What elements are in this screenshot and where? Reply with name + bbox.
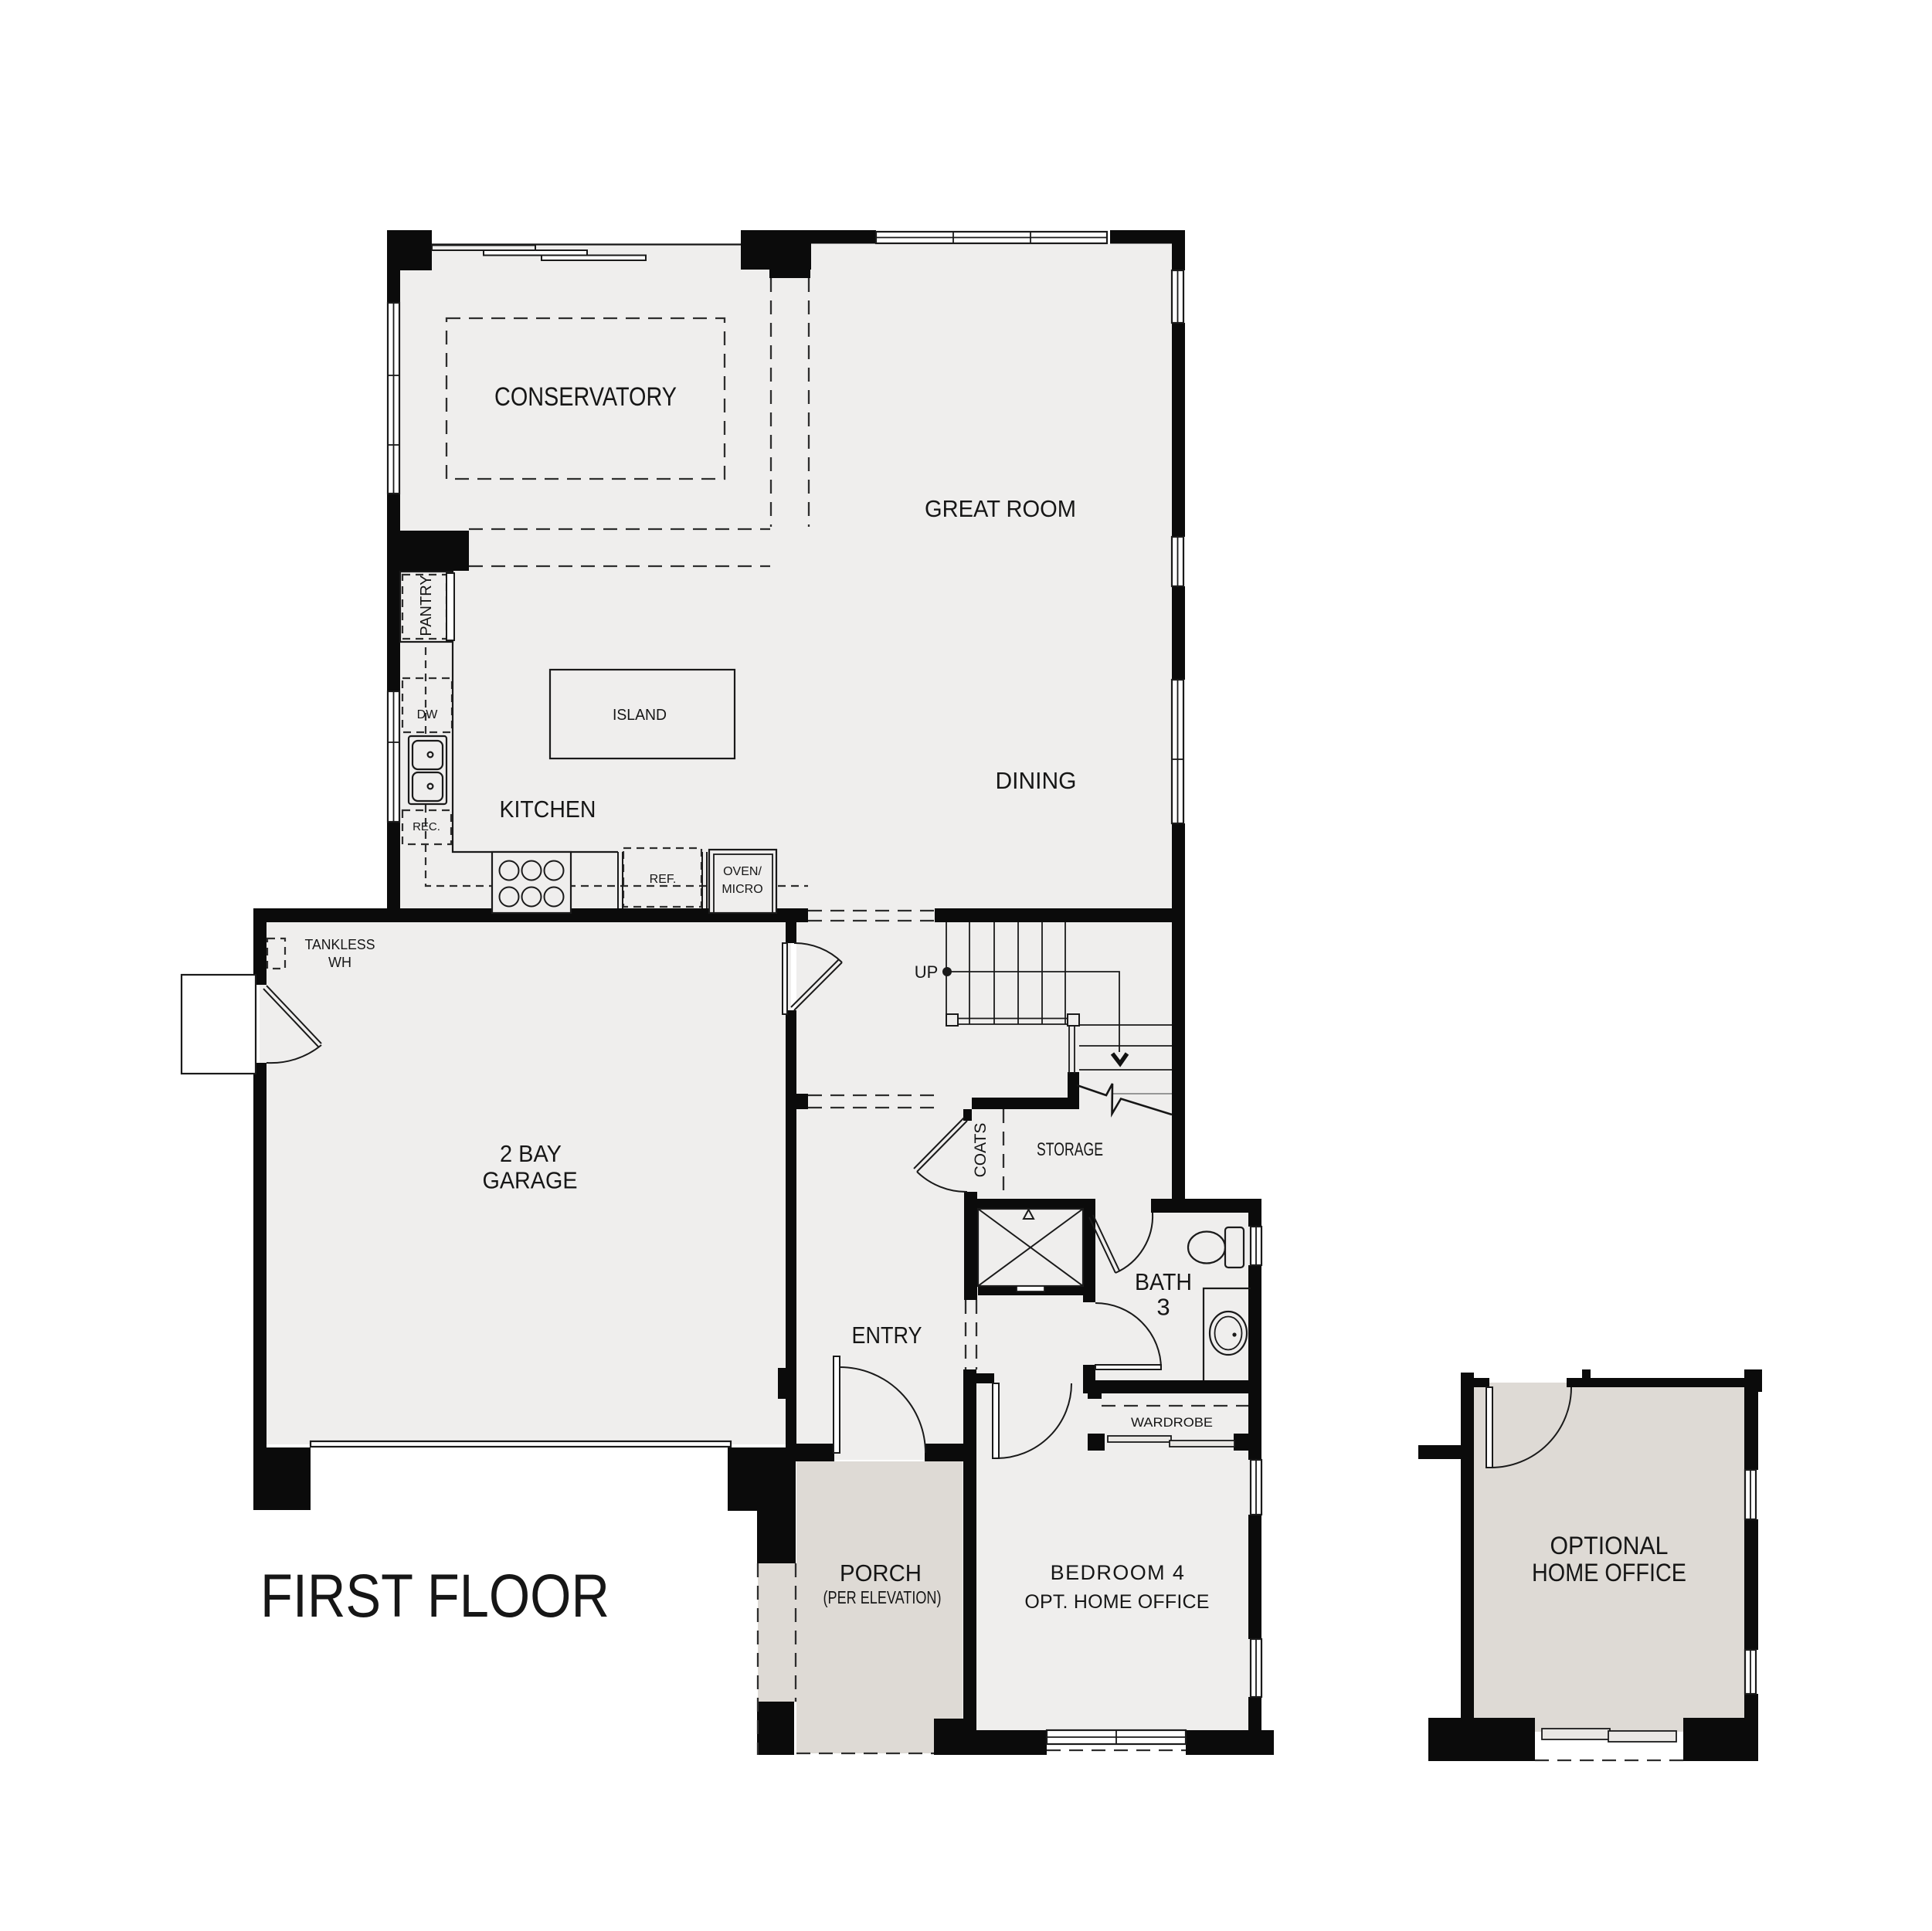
svg-text:WARDROBE: WARDROBE — [1131, 1415, 1213, 1430]
svg-text:UP: UP — [915, 962, 939, 982]
svg-text:REC.: REC. — [413, 820, 440, 833]
svg-text:WH: WH — [328, 955, 351, 970]
svg-text:BATH: BATH — [1135, 1268, 1192, 1295]
svg-text:MICRO: MICRO — [722, 883, 762, 896]
svg-text:KITCHEN: KITCHEN — [500, 796, 596, 823]
svg-text:PANTRY: PANTRY — [418, 575, 435, 636]
svg-text:COATS: COATS — [972, 1123, 990, 1178]
svg-text:2 BAY: 2 BAY — [500, 1140, 562, 1167]
svg-text:CONSERVATORY: CONSERVATORY — [494, 382, 677, 412]
svg-text:STORAGE: STORAGE — [1037, 1139, 1103, 1160]
svg-text:ENTRY: ENTRY — [852, 1322, 922, 1349]
svg-text:ISLAND: ISLAND — [613, 707, 667, 724]
svg-text:PORCH: PORCH — [840, 1559, 922, 1587]
svg-text:TANKLESS: TANKLESS — [305, 937, 375, 952]
svg-text:HOME OFFICE: HOME OFFICE — [1532, 1559, 1686, 1587]
svg-text:(PER ELEVATION): (PER ELEVATION) — [823, 1587, 942, 1607]
svg-text:OVEN/: OVEN/ — [723, 865, 762, 878]
svg-text:DW: DW — [417, 708, 439, 721]
svg-text:DINING: DINING — [996, 767, 1077, 794]
svg-text:BEDROOM 4: BEDROOM 4 — [1051, 1561, 1186, 1584]
svg-text:REF.: REF. — [650, 873, 677, 886]
svg-text:FIRST FLOOR: FIRST FLOOR — [260, 1561, 609, 1630]
svg-text:GREAT ROOM: GREAT ROOM — [925, 495, 1076, 522]
svg-text:OPT. HOME OFFICE: OPT. HOME OFFICE — [1024, 1591, 1209, 1613]
svg-text:OPTIONAL: OPTIONAL — [1550, 1532, 1669, 1559]
svg-text:GARAGE: GARAGE — [483, 1167, 578, 1194]
svg-text:3: 3 — [1156, 1294, 1170, 1321]
